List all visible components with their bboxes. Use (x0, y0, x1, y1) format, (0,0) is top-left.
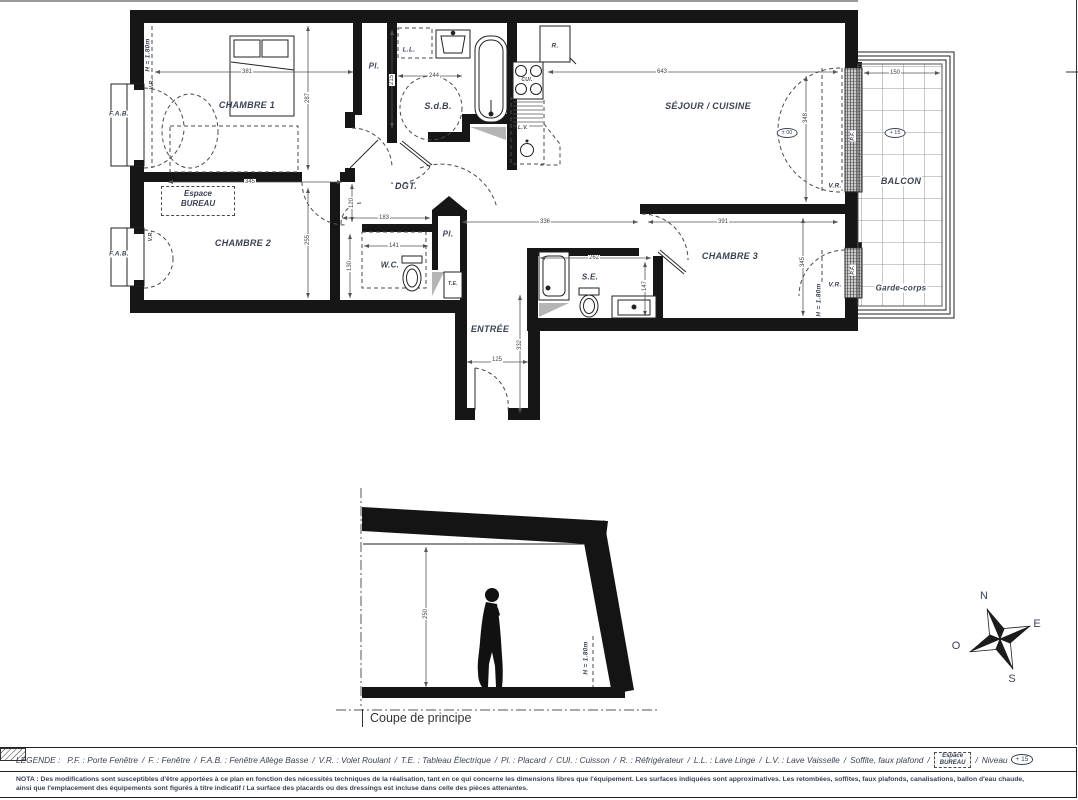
dim-sejour-w: 643 (656, 69, 668, 75)
room-label-entree: ENTRÉE (471, 324, 509, 334)
dim-dgt-h: 120 (349, 197, 355, 209)
room-label-sdb: S.d.B. (423, 101, 452, 111)
dim-porte-w: 125 (491, 357, 503, 363)
legend-hatch-swatch (0, 748, 26, 761)
person-silhouette (478, 588, 503, 687)
legend-item-fab: F.A.B. : Fenêtre Allège Basse (200, 755, 308, 765)
toilet-se (579, 288, 599, 317)
shower (539, 252, 569, 300)
level-marker-plus15: + 15 (885, 128, 906, 138)
dim-bureau-w: 345 (244, 179, 256, 185)
room-label-dgt: DGT. (395, 181, 417, 191)
height-label-chambre3: H = 1.80m (816, 282, 823, 317)
vr-label-1: V.R. (149, 79, 155, 89)
refrigerateur-label: R. (551, 43, 558, 50)
fab-label-2: F.A.B. (108, 251, 130, 258)
legend-item-r: R. : Réfrigérateur (620, 755, 684, 765)
espace-bureau-line2: BUREAU (162, 199, 234, 209)
legend-item-lv: L.V. : Lave Vaisselle (766, 755, 840, 765)
dim-se-h: 147 (642, 280, 648, 292)
placard-label-1: Pl. (369, 62, 380, 71)
espace-bureau-line1: Espace (162, 189, 234, 199)
legend-item-te: T.E. : Tableau Électrique (401, 755, 491, 765)
legend-item-vr: V.R. : Volet Roulant (319, 755, 391, 765)
nota-line2: ainsi que l'emplacement des équipements … (16, 785, 528, 792)
section-title: Coupe de principe (362, 709, 471, 727)
nota-block: NOTA : Des modifications sont susceptibl… (0, 772, 1077, 798)
legend-bar: LÉGENDE : P.F. : Porte Fenêtre / F. : Fe… (0, 747, 1077, 772)
pf-label-1: P.F. (850, 130, 856, 141)
legend-item-f: F. : Fenêtre (148, 755, 190, 765)
nota-title: NOTA : (16, 776, 39, 783)
height-label-chambre1: H = 1.80m (145, 37, 152, 72)
compass-rose (957, 596, 1044, 683)
dim-chambre3-w: 391 (717, 219, 729, 225)
room-label-se: S.E. (581, 273, 599, 282)
compass-north-label: N (980, 590, 988, 602)
fab-label-1: F.A.B. (108, 111, 130, 118)
dim-chambre1-h: 287 (305, 92, 311, 104)
legend-item-soffite: Soffite, faux plafond (850, 755, 923, 765)
tableau-electrique-label: T.E. (448, 281, 458, 287)
cuisson-label: CUI. (520, 77, 533, 83)
section-height-dim: 250 (423, 608, 429, 620)
room-label-balcon: BALCON (880, 176, 922, 186)
plan-sheet: CHAMBRE 1 CHAMBRE 2 CHAMBRE 3 SÉJOUR / C… (0, 0, 1078, 800)
dim-sdb-h: 215 (389, 74, 395, 86)
toilet-wc (402, 256, 422, 291)
lave-vaisselle-label: L.V. (517, 125, 529, 131)
dim-entree-h: 332 (517, 339, 523, 351)
lave-linge-label: L.L. (402, 47, 417, 54)
legend-espace-bureau-swatch: Espace BUREAU (934, 752, 972, 768)
section-drawing (336, 488, 660, 710)
dim-chambre3-h: 345 (800, 256, 806, 268)
dim-chambre2-h: 255 (305, 234, 311, 246)
nota-line1: Des modifications sont susceptibles d'êt… (41, 776, 1025, 783)
washbasin-se (612, 296, 656, 318)
vr-label-3: V.R. (827, 183, 842, 190)
pf-label-2: P.F. (850, 264, 856, 275)
dim-wc-h: 130 (347, 260, 353, 272)
garde-corps-label: Garde-corps (875, 284, 928, 293)
vr-label-2: V.R. (148, 231, 154, 241)
dim-sdb-w: 244 (428, 73, 440, 79)
legend-item-pf: P.F. : Porte Fenêtre (67, 755, 138, 765)
room-label-sejour-cuisine: SÉJOUR / CUISINE (665, 101, 751, 111)
compass-east-label: E (1033, 618, 1040, 630)
placard-label-2: Pl. (443, 230, 454, 239)
room-label-chambre2: CHAMBRE 2 (215, 238, 271, 248)
dim-sejour-h: 348 (803, 112, 809, 124)
dim-chambre1-w: 381 (241, 69, 253, 75)
legend-niveau-label: Niveau (982, 755, 1008, 765)
floor-plan-drawing (0, 0, 1078, 745)
room-label-wc: W.C. (380, 261, 400, 270)
legend-item-ll: L.L. : Lave Linge (694, 755, 755, 765)
level-marker-zero: ± 00 (777, 128, 798, 138)
dim-wc-w: 141 (388, 243, 400, 249)
legend-item-pl: Pl. : Placard (501, 755, 546, 765)
room-label-chambre3: CHAMBRE 3 (702, 251, 758, 261)
legend-item-cui: CUI. : Cuisson (556, 755, 609, 765)
fab-window-chambre1 (111, 84, 144, 166)
vr-label-4: V.R. (827, 282, 842, 289)
washbasin-sdb (436, 30, 470, 58)
room-label-chambre1: CHAMBRE 1 (219, 100, 275, 110)
dim-wc-zone: 183 (378, 215, 390, 221)
section-h180-label: H = 1.80m (583, 640, 590, 675)
dim-se-w: 262 (588, 255, 600, 261)
compass-south-label: S (1008, 673, 1015, 685)
bathtub (475, 36, 507, 122)
legend-niveau-value: + 15 (1011, 754, 1034, 765)
dim-hall-w: 336 (539, 219, 551, 225)
dim-balcon-w: 150 (889, 70, 901, 76)
espace-bureau-box: Espace BUREAU (161, 186, 235, 216)
compass-west-label: O (952, 640, 961, 652)
